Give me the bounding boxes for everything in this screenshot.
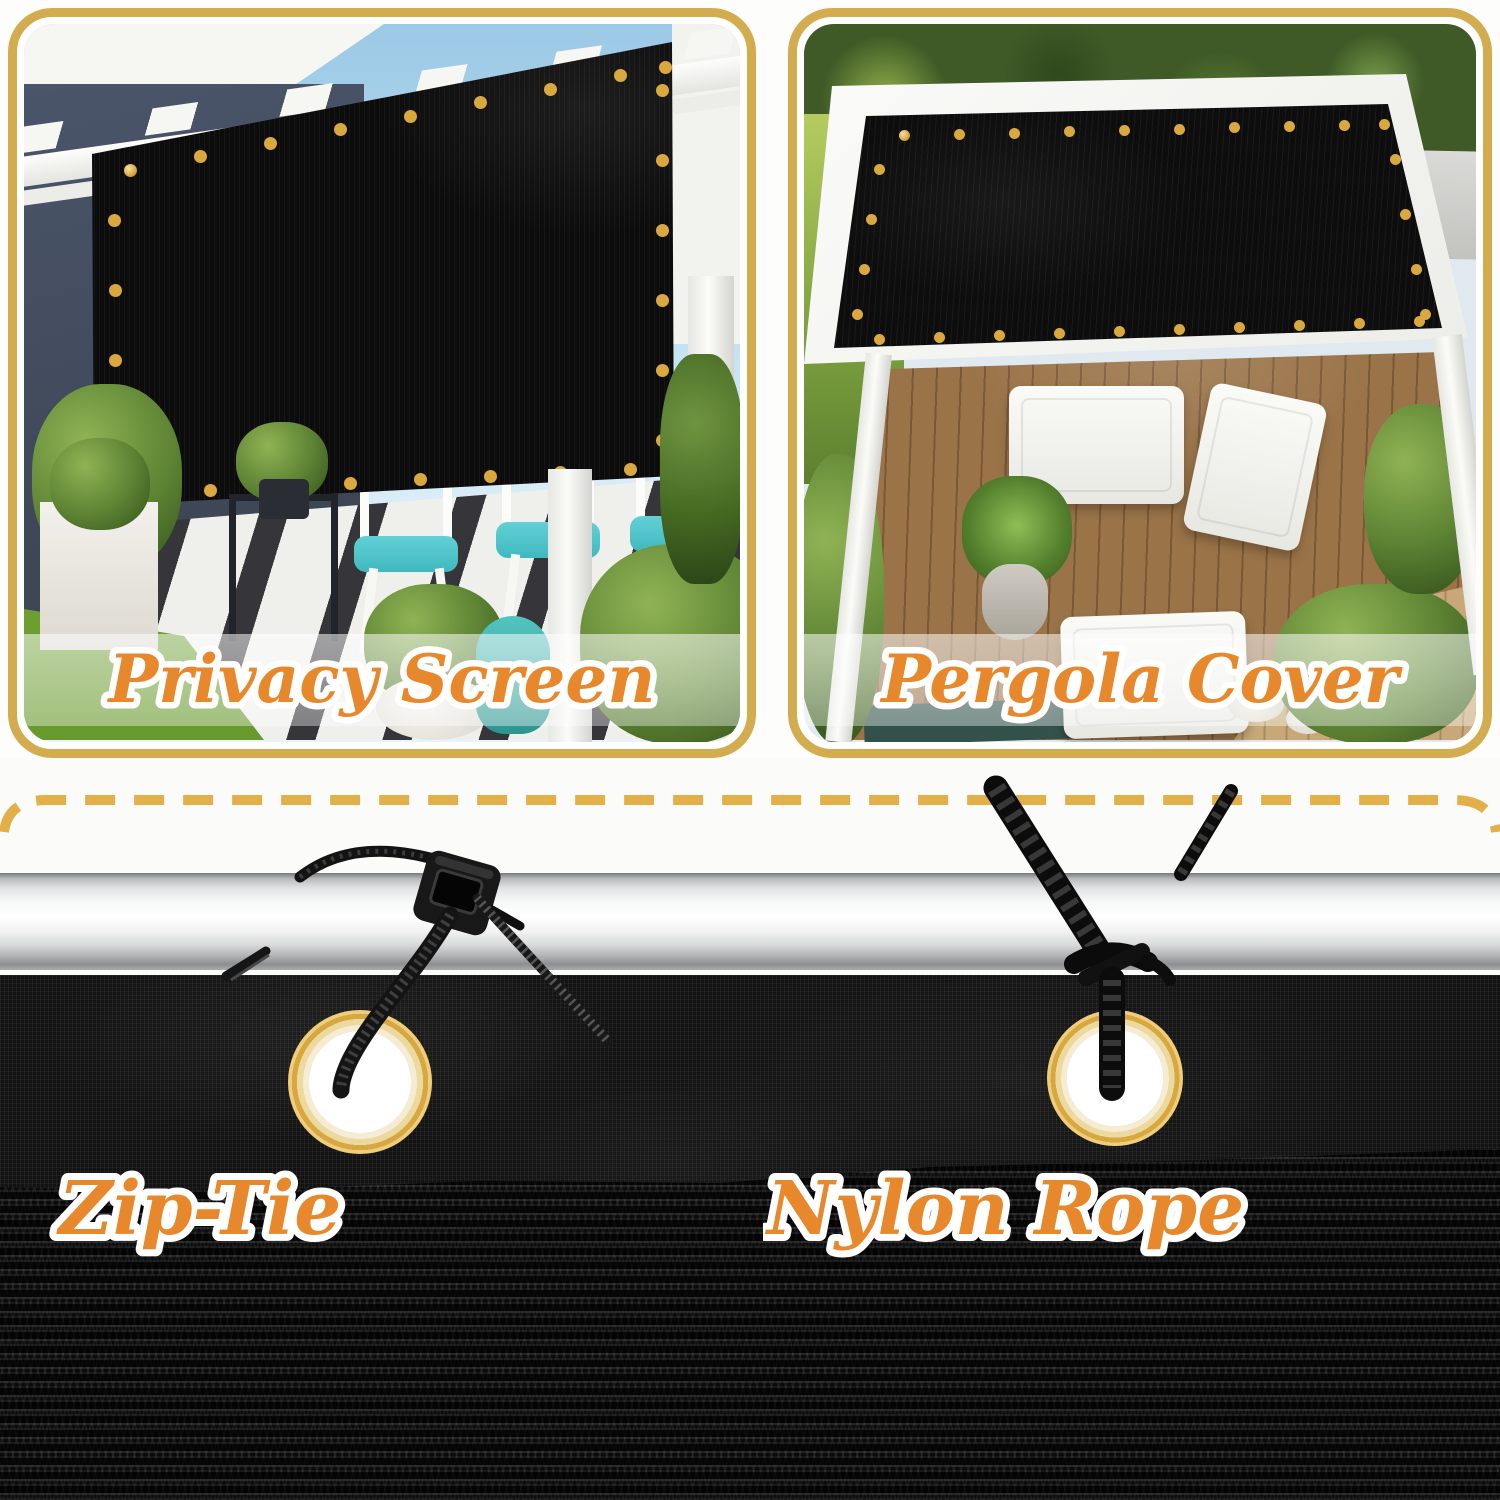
plant-pot	[982, 564, 1048, 640]
tall-bush	[660, 354, 740, 584]
caption-band: Privacy Screen	[24, 634, 740, 726]
pergola-cover-label: Pergola Cover	[879, 640, 1402, 718]
mounting-overlay	[0, 758, 1500, 1500]
zip-tie-stub	[226, 951, 266, 976]
privacy-screen-photo: Privacy Screen	[24, 24, 740, 742]
nylon-rope	[996, 788, 1231, 1088]
dashed-border	[4, 800, 1496, 832]
privacy-screen-label: Privacy Screen	[107, 640, 656, 718]
panel-privacy-screen: Privacy Screen	[8, 8, 756, 758]
nylon-rope-label-svg: Nylon Rope	[763, 1150, 1248, 1265]
caption-svg: Privacy Screen	[24, 634, 740, 726]
product-infographic: Privacy Screen	[0, 0, 1500, 1500]
zip-tie-strap	[300, 851, 430, 877]
zip-tie-tail	[341, 915, 450, 1090]
caption-svg: Pergola Cover	[804, 634, 1476, 726]
cloth-grommets	[899, 130, 910, 141]
zip-tie-label-svg: Zip-Tie	[10, 1150, 390, 1265]
zip-tie	[226, 848, 607, 1090]
screen-grommets	[124, 164, 137, 177]
nylon-rope-label-box: Nylon Rope	[763, 1150, 1248, 1265]
zip-tie-label: Zip-Tie	[56, 1166, 342, 1252]
planter-plant	[50, 438, 150, 530]
panel-pergola-cover: Pergola Cover	[788, 8, 1492, 758]
caption-band: Pergola Cover	[804, 634, 1476, 726]
mounting-demo: Zip-Tie Nylon Rope	[0, 758, 1500, 1500]
nylon-rope-label: Nylon Rope	[765, 1166, 1244, 1252]
sofa-cushion-seam	[1021, 398, 1172, 492]
pergola-cover-photo: Pergola Cover	[804, 24, 1476, 742]
chair-cushion	[354, 536, 458, 572]
zip-tie-label-box: Zip-Tie	[10, 1150, 390, 1265]
armchair-cushion-seam	[1196, 396, 1314, 539]
plant-pot	[259, 479, 309, 519]
